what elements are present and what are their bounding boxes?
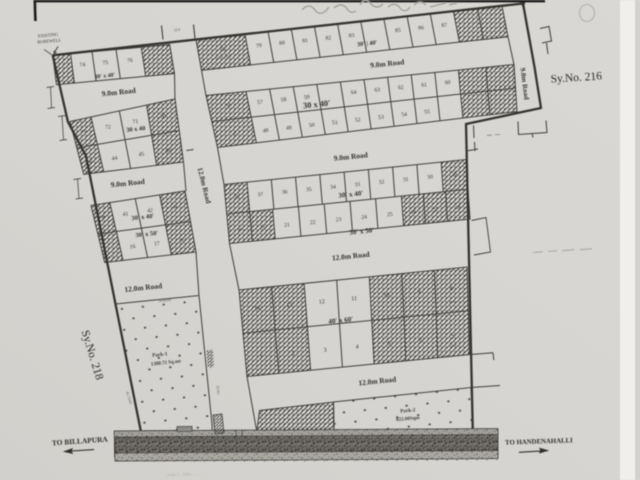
svg-text:74: 74 <box>79 62 85 69</box>
svg-text:14: 14 <box>254 306 261 313</box>
svg-text:21: 21 <box>284 222 290 229</box>
svg-text:51: 51 <box>332 120 338 127</box>
svg-text:73: 73 <box>81 129 86 134</box>
svg-text:48: 48 <box>263 128 269 135</box>
svg-text:53: 53 <box>378 114 384 121</box>
svg-text:6: 6 <box>419 338 423 344</box>
svg-text:64: 64 <box>351 90 357 97</box>
svg-text:19: 19 <box>237 227 242 232</box>
svg-text:1: 1 <box>260 354 264 360</box>
svg-text:85: 85 <box>395 28 401 35</box>
svg-text:ama: ama <box>451 343 458 348</box>
svg-text:36: 36 <box>282 189 288 196</box>
svg-text:16: 16 <box>130 244 136 251</box>
svg-text:61: 61 <box>421 82 427 89</box>
svg-text:8: 8 <box>450 286 454 292</box>
svg-text:- scale 1 : 1000 - . . - .: - scale 1 : 1000 - . . - . <box>165 471 202 477</box>
svg-text:54: 54 <box>401 112 407 119</box>
svg-text:76: 76 <box>127 58 133 65</box>
svg-text:20: 20 <box>260 224 265 229</box>
svg-text:62: 62 <box>398 85 404 92</box>
svg-text:23: 23 <box>335 217 341 224</box>
svg-text:10: 10 <box>383 293 390 300</box>
svg-text:79: 79 <box>256 43 262 50</box>
svg-text:46: 46 <box>165 148 171 155</box>
svg-text:30: 30 <box>427 174 433 181</box>
svg-text:80: 80 <box>279 40 285 47</box>
svg-text:43: 43 <box>88 158 93 163</box>
svg-text:47: 47 <box>232 131 237 136</box>
svg-text:81: 81 <box>302 38 308 45</box>
svg-text:9: 9 <box>417 290 421 296</box>
svg-text:58: 58 <box>281 97 287 104</box>
svg-text:49: 49 <box>286 125 292 132</box>
svg-text:57: 57 <box>257 99 263 106</box>
svg-text:4: 4 <box>355 344 359 350</box>
svg-text:45: 45 <box>138 152 144 159</box>
svg-text:75: 75 <box>102 60 108 67</box>
svg-text:72: 72 <box>105 124 111 131</box>
svg-text:31: 31 <box>403 177 409 184</box>
svg-text:22: 22 <box>310 220 316 227</box>
svg-text:63: 63 <box>374 87 380 94</box>
svg-text:17: 17 <box>154 241 160 248</box>
svg-text:44: 44 <box>112 155 118 162</box>
svg-text:86: 86 <box>418 25 424 32</box>
svg-text:ama: ama <box>449 299 456 304</box>
svg-text:83: 83 <box>349 33 355 40</box>
svg-text:24: 24 <box>361 214 367 221</box>
svg-text:12: 12 <box>319 299 326 306</box>
svg-text:7: 7 <box>451 335 455 341</box>
svg-text:82: 82 <box>325 35 331 42</box>
svg-text:41: 41 <box>122 211 128 218</box>
svg-text:2: 2 <box>292 351 296 357</box>
svg-text:12.0: 12.0 <box>173 28 180 33</box>
svg-text:5: 5 <box>387 341 391 347</box>
svg-text:13: 13 <box>286 302 293 309</box>
svg-text:34: 34 <box>330 184 336 191</box>
svg-text:33: 33 <box>354 182 360 189</box>
svg-text:35: 35 <box>306 187 312 194</box>
svg-text:78: 78 <box>220 47 226 54</box>
svg-text:11: 11 <box>351 296 357 303</box>
svg-text:56: 56 <box>226 102 231 107</box>
svg-text:52: 52 <box>355 117 361 124</box>
svg-text:37: 37 <box>257 192 263 199</box>
svg-text:40: 40 <box>101 214 106 219</box>
svg-text:32: 32 <box>378 179 384 186</box>
svg-text:70: 70 <box>160 114 166 121</box>
svg-text:55: 55 <box>424 109 430 116</box>
svg-text:71: 71 <box>132 119 138 126</box>
svg-text:60: 60 <box>445 80 451 87</box>
svg-text:50: 50 <box>309 122 315 129</box>
svg-text:87: 87 <box>441 23 447 30</box>
svg-text:25: 25 <box>387 212 393 219</box>
svg-text:3: 3 <box>323 347 327 353</box>
